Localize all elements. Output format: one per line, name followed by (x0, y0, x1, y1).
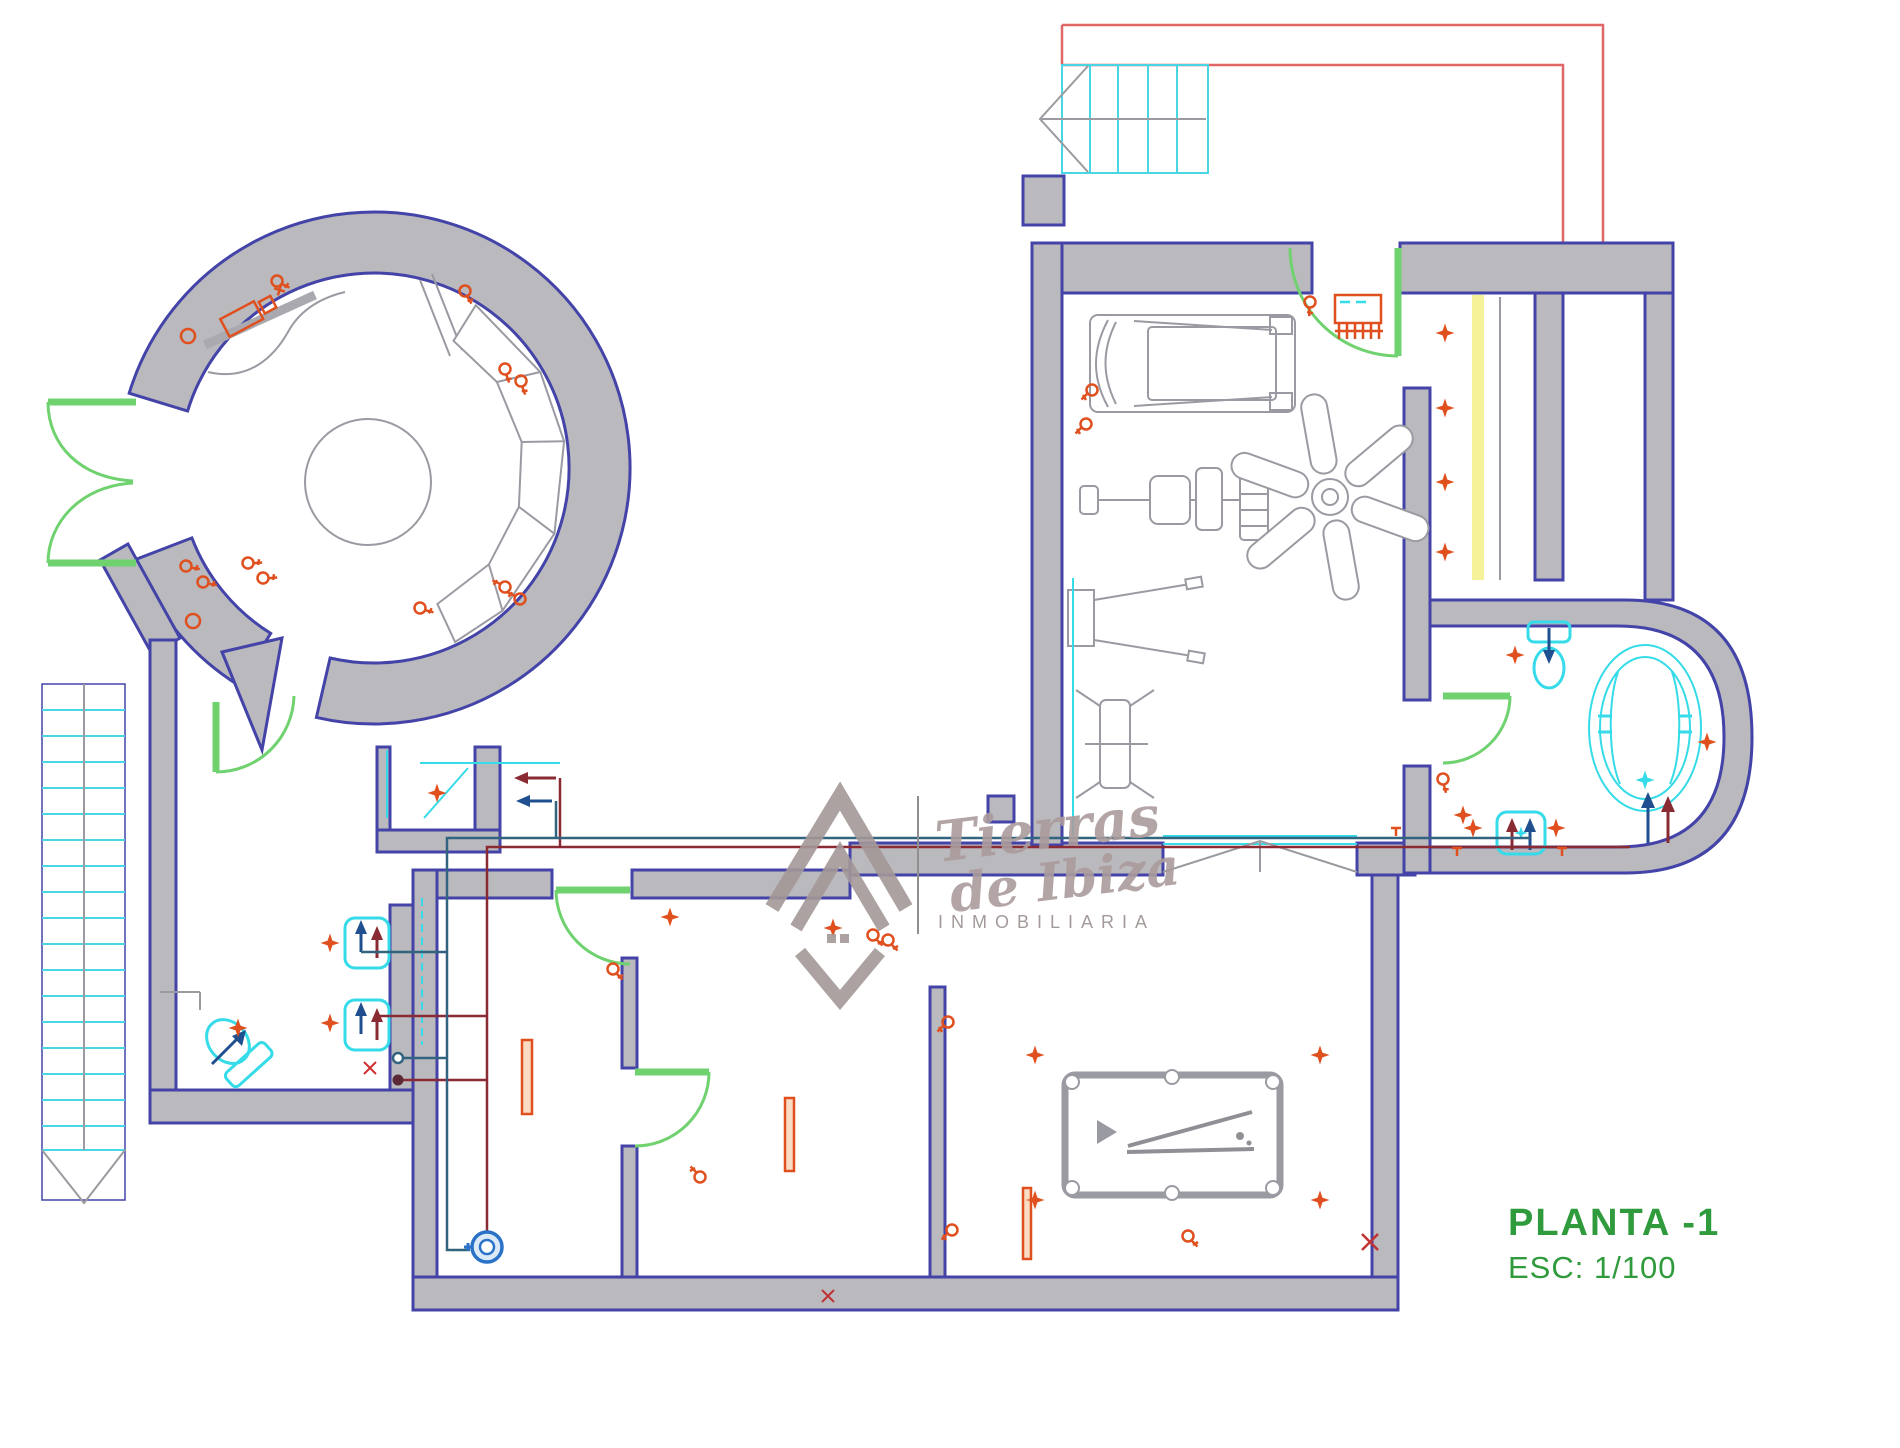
cold-junction (393, 1053, 403, 1063)
boiler (464, 1232, 502, 1262)
room-a-door (556, 890, 630, 964)
radiator-room-a (522, 1040, 532, 1114)
toilet (1528, 622, 1570, 688)
plan-title: PLANTA -1 (1508, 1202, 1720, 1244)
hot-junction (393, 1075, 404, 1086)
sink-2 (345, 1000, 389, 1050)
valve-x (364, 1062, 376, 1074)
gym-equipment (1068, 315, 1432, 798)
cable-machine (1068, 577, 1205, 664)
watermark-line3: INMOBILIARIA (938, 912, 1155, 932)
radiator-room-b (785, 1098, 794, 1171)
plan-scale: ESC: 1/100 (1508, 1250, 1677, 1285)
bathroom-wall (1430, 600, 1752, 873)
workout-bench (1076, 690, 1154, 798)
sink-1 (345, 918, 389, 968)
room-b-door (635, 1072, 709, 1146)
ceiling-lights (229, 324, 1717, 1210)
bathroom-fixtures (1497, 622, 1701, 854)
window-strip (1472, 295, 1484, 580)
left-room-fixtures (160, 918, 389, 1089)
floor-plan-canvas: Tierras de Ibiza INMOBILIARIA PLANTA -1 … (0, 0, 1900, 1448)
stairs-left (42, 684, 125, 1203)
radiator-room-c (1023, 1188, 1031, 1259)
bathtub (1589, 645, 1701, 811)
wall-heater-panel (1335, 295, 1383, 339)
walls (100, 176, 1752, 1310)
round-table (305, 419, 431, 545)
toilet-left (193, 1006, 274, 1088)
treadmill (1090, 315, 1295, 412)
entrance-double-door (48, 402, 136, 563)
floorplan-page: Tierras de Ibiza INMOBILIARIA PLANTA -1 … (0, 0, 1900, 1448)
upper-floor-outline (1062, 25, 1603, 243)
title-block: PLANTA -1 ESC: 1/100 (1508, 1202, 1720, 1285)
bathroom-door (1443, 696, 1510, 763)
stairs-top (1040, 65, 1208, 173)
pool-table (1065, 1070, 1280, 1200)
electrical-symbols (178, 272, 1716, 1302)
gym-sliding-door (422, 578, 1357, 1045)
